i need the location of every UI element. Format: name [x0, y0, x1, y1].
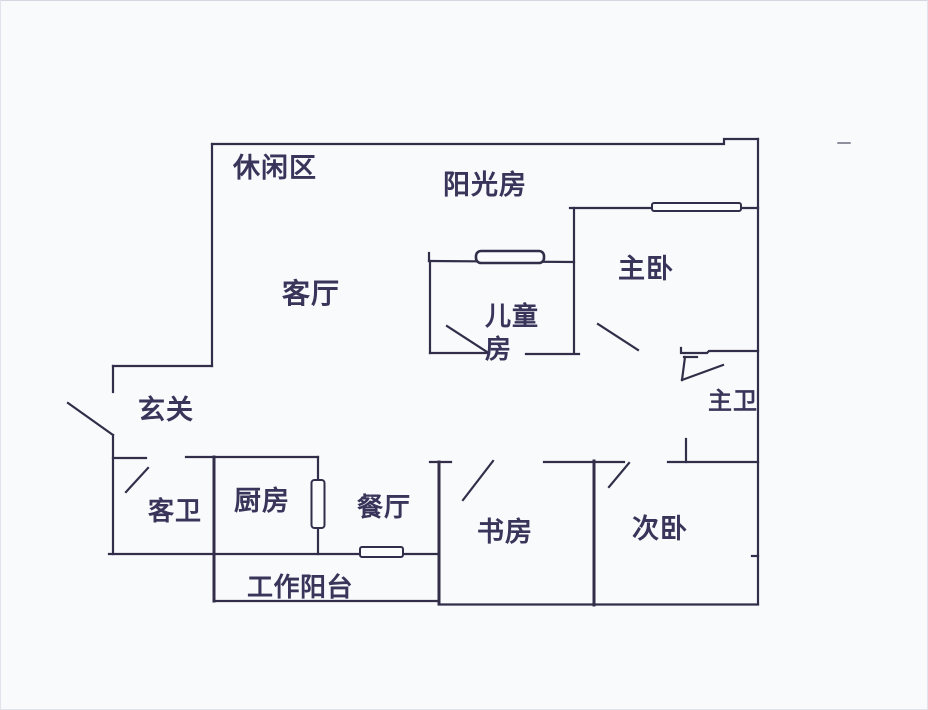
floorplan-canvas: 休闲区 阳光房 客厅 主卧 儿童 房 玄关 客卫 厨房 餐厅 书房 次卧 主卫 … — [0, 0, 928, 710]
master-door-leaf — [598, 324, 638, 350]
room-label-sun-room: 阳光房 — [443, 169, 527, 202]
wall-masterbath-top — [681, 348, 758, 353]
floorplan-drawing — [1, 1, 928, 710]
wall-outer-top — [212, 139, 758, 144]
guestbath-door-leaf — [126, 468, 148, 492]
bedroom2-door-leaf — [609, 463, 629, 487]
dining-window — [360, 547, 403, 557]
entry-door-leaf — [68, 403, 113, 435]
room-label-entry: 玄关 — [138, 394, 194, 427]
masterbath-door-jamb — [682, 357, 685, 380]
room-label-kitchen: 厨房 — [234, 485, 290, 518]
kids-room-window — [476, 251, 544, 263]
room-label-master-bedroom: 主卧 — [618, 253, 674, 286]
room-label-study: 书房 — [477, 516, 533, 549]
study-door-leaf — [463, 461, 493, 500]
kids-door-leaf — [447, 326, 487, 352]
room-label-second-bedroom: 次卧 — [632, 513, 688, 546]
masterbath-door-leaf — [682, 365, 723, 380]
master-bedroom-window — [652, 203, 741, 211]
room-label-dining-room: 餐厅 — [357, 492, 411, 524]
room-label-living-room: 客厅 — [282, 278, 340, 312]
kitchen-door-panel — [312, 480, 325, 528]
room-label-kids-room: 儿童 房 — [485, 300, 545, 366]
room-label-master-bath: 主卫 — [708, 388, 758, 417]
room-label-guest-bath: 客卫 — [148, 496, 202, 528]
room-label-leisure-area: 休闲区 — [233, 152, 317, 185]
room-label-work-balcony: 工作阳台 — [247, 572, 353, 604]
